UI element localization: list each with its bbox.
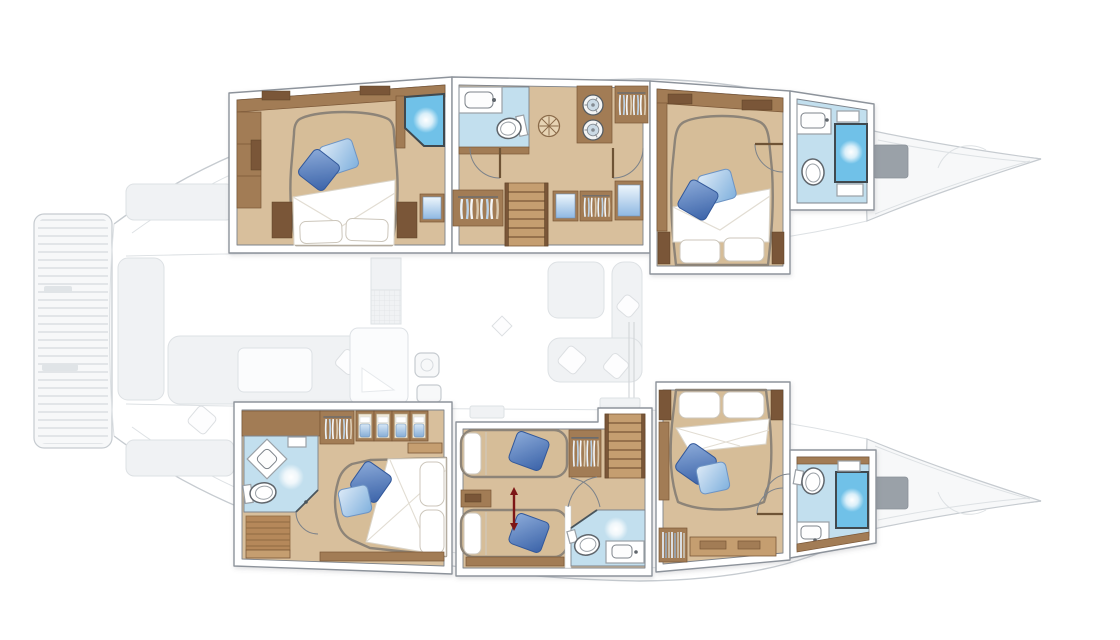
nightstand (461, 490, 491, 507)
companionway-stairs (605, 414, 645, 478)
washer-dryer-cabinet (577, 86, 612, 143)
shelf (408, 443, 442, 453)
blue-art-cabinet (420, 194, 444, 222)
stbd-twin-cabin (456, 408, 652, 576)
bench (272, 202, 292, 238)
hanging-locker (320, 411, 354, 444)
mast-step-ghost (492, 316, 512, 336)
dryer-icon (583, 120, 603, 140)
stbd-forward-cabin (656, 382, 790, 572)
shower-stall (836, 472, 868, 528)
shelf (837, 111, 859, 122)
port-forward-cabin (650, 81, 790, 274)
blue-art-cabinet (615, 181, 643, 220)
bookshelf (659, 528, 687, 562)
hanging-locker (453, 190, 503, 226)
bench (772, 232, 784, 264)
shelf-band (466, 557, 564, 566)
vanity (797, 104, 831, 134)
light-blue-pillow (337, 484, 372, 518)
corner-shower (396, 94, 444, 148)
bench (659, 390, 671, 420)
double-bed (671, 116, 773, 265)
side-lockers (659, 422, 669, 500)
companionway-stairs (505, 183, 548, 246)
shelf-band (320, 552, 444, 561)
catamaran-floor-plan (0, 0, 1120, 640)
hanging-locker (569, 430, 601, 477)
swim-platform-ghost (34, 214, 112, 448)
bench (771, 390, 783, 420)
port-forward-bathroom (790, 91, 874, 210)
hanging-locker (580, 191, 612, 221)
double-bed (290, 112, 397, 245)
teak-grating (246, 516, 290, 558)
bathroom (459, 87, 529, 154)
towel-cubbies (356, 411, 428, 441)
bench (397, 202, 417, 238)
saloon-ghost (350, 258, 642, 418)
shelf (838, 461, 860, 471)
washbasin (465, 92, 493, 108)
shelf (837, 184, 863, 196)
port-bathroom-corridor (452, 77, 650, 253)
bench (658, 232, 670, 264)
double-bed (671, 390, 772, 510)
washbasin (612, 545, 632, 558)
single-bed-top (461, 430, 567, 477)
side-lockers (657, 103, 667, 231)
washing-machine-icon (583, 95, 603, 115)
blue-art-cabinet (553, 191, 578, 221)
hanging-locker (615, 86, 648, 123)
shower-stall (835, 124, 867, 182)
floor-plan-canvas (0, 0, 1120, 640)
floor-hatch (539, 116, 560, 137)
sideboard (690, 537, 776, 556)
stbd-aft-cabin (234, 402, 452, 574)
light-blue-pillow (695, 461, 730, 495)
foredeck-bench-starboard (873, 477, 908, 509)
vanity-band (242, 411, 320, 436)
foredeck-bench-port (873, 145, 908, 178)
port-aft-cabin (229, 77, 452, 253)
